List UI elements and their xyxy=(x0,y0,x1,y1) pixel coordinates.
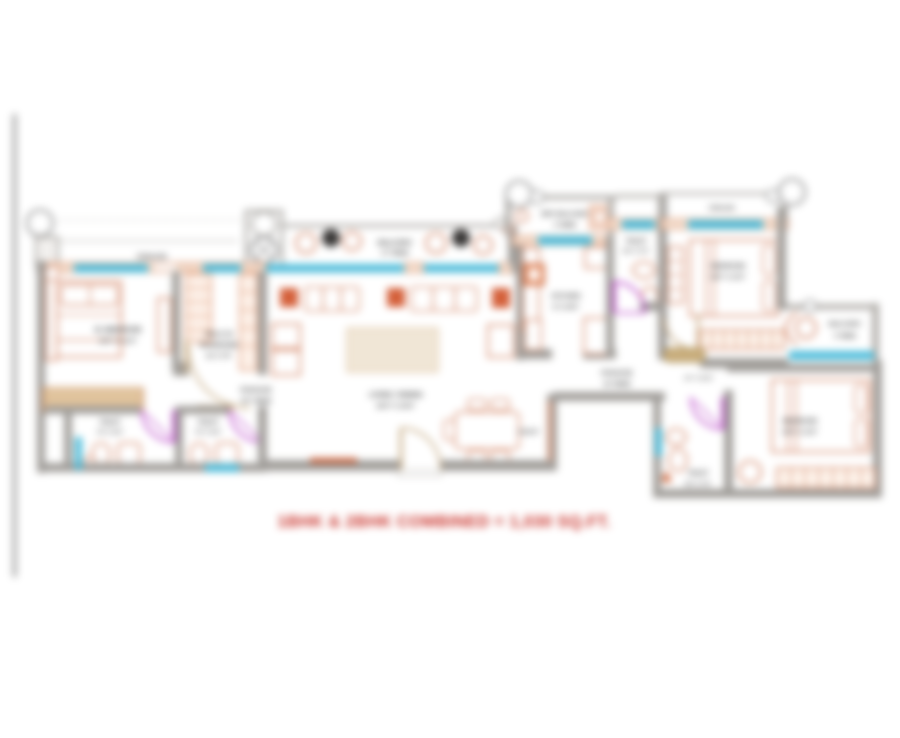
svg-text:BALCONY: BALCONY xyxy=(829,321,862,328)
svg-text:CHAJJA: CHAJJA xyxy=(709,205,735,212)
svg-text:20'0" X 16'0": 20'0" X 16'0" xyxy=(377,403,416,410)
svg-text:BEDROOM: BEDROOM xyxy=(783,418,817,425)
svg-text:TOILET: TOILET xyxy=(99,420,121,426)
svg-text:10'0" X 11'6": 10'0" X 11'6" xyxy=(782,430,818,436)
svg-text:WARDROBE: WARDROBE xyxy=(200,342,239,349)
svg-text:BALCONY: BALCONY xyxy=(378,240,413,247)
svg-text:TOILET: TOILET xyxy=(625,239,647,245)
svg-text:4'0" WIDE: 4'0" WIDE xyxy=(241,398,272,405)
svg-text:4'6" X 7'6": 4'6" X 7'6" xyxy=(685,482,712,488)
svg-text:TOILET: TOILET xyxy=(687,471,709,477)
svg-text:WALK IN: WALK IN xyxy=(205,331,233,338)
svg-text:LIVING / DINING: LIVING / DINING xyxy=(369,392,423,399)
svg-text:10' X 7'6": 10' X 7'6" xyxy=(206,354,233,360)
svg-text:DRY BALCONY: DRY BALCONY xyxy=(541,211,589,218)
svg-text:4'6" X 8'25": 4'6" X 8'25" xyxy=(684,376,714,382)
svg-text:17' WIDE: 17' WIDE xyxy=(381,250,409,257)
svg-text:7'6" X 4'0": 7'6" X 4'0" xyxy=(97,430,124,436)
svg-text:PASSAGE: PASSAGE xyxy=(601,370,633,377)
svg-text:KITCHEN: KITCHEN xyxy=(552,293,581,300)
svg-text:BEDROOM: BEDROOM xyxy=(711,263,745,270)
svg-text:10' WIDE: 10' WIDE xyxy=(603,381,631,388)
svg-text:6'X3'4": 6'X3'4" xyxy=(518,429,539,436)
svg-text:PASSAGE: PASSAGE xyxy=(240,387,272,394)
svg-text:TOILET: TOILET xyxy=(197,420,219,426)
svg-text:1BHK & 2BHK COMBINED = 1,030 S: 1BHK & 2BHK COMBINED = 1,030 SQ.FT. xyxy=(277,513,611,531)
svg-text:10'0" X 11'0": 10'0" X 11'0" xyxy=(99,338,138,345)
svg-text:CHAJJA: CHAJJA xyxy=(137,252,168,261)
svg-text:M. BEDROOM: M. BEDROOM xyxy=(95,327,141,334)
svg-text:3' WIDE: 3' WIDE xyxy=(554,223,576,229)
svg-text:3' WIDE: 3' WIDE xyxy=(834,334,856,340)
svg-text:4'6" X 7'0": 4'6" X 7'0" xyxy=(623,249,650,255)
svg-text:8' X 10'6": 8' X 10'6" xyxy=(553,305,580,311)
svg-text:7'0" X 4'0": 7'0" X 4'0" xyxy=(195,430,222,436)
svg-text:10'0" X 11'0": 10'0" X 11'0" xyxy=(710,275,746,281)
